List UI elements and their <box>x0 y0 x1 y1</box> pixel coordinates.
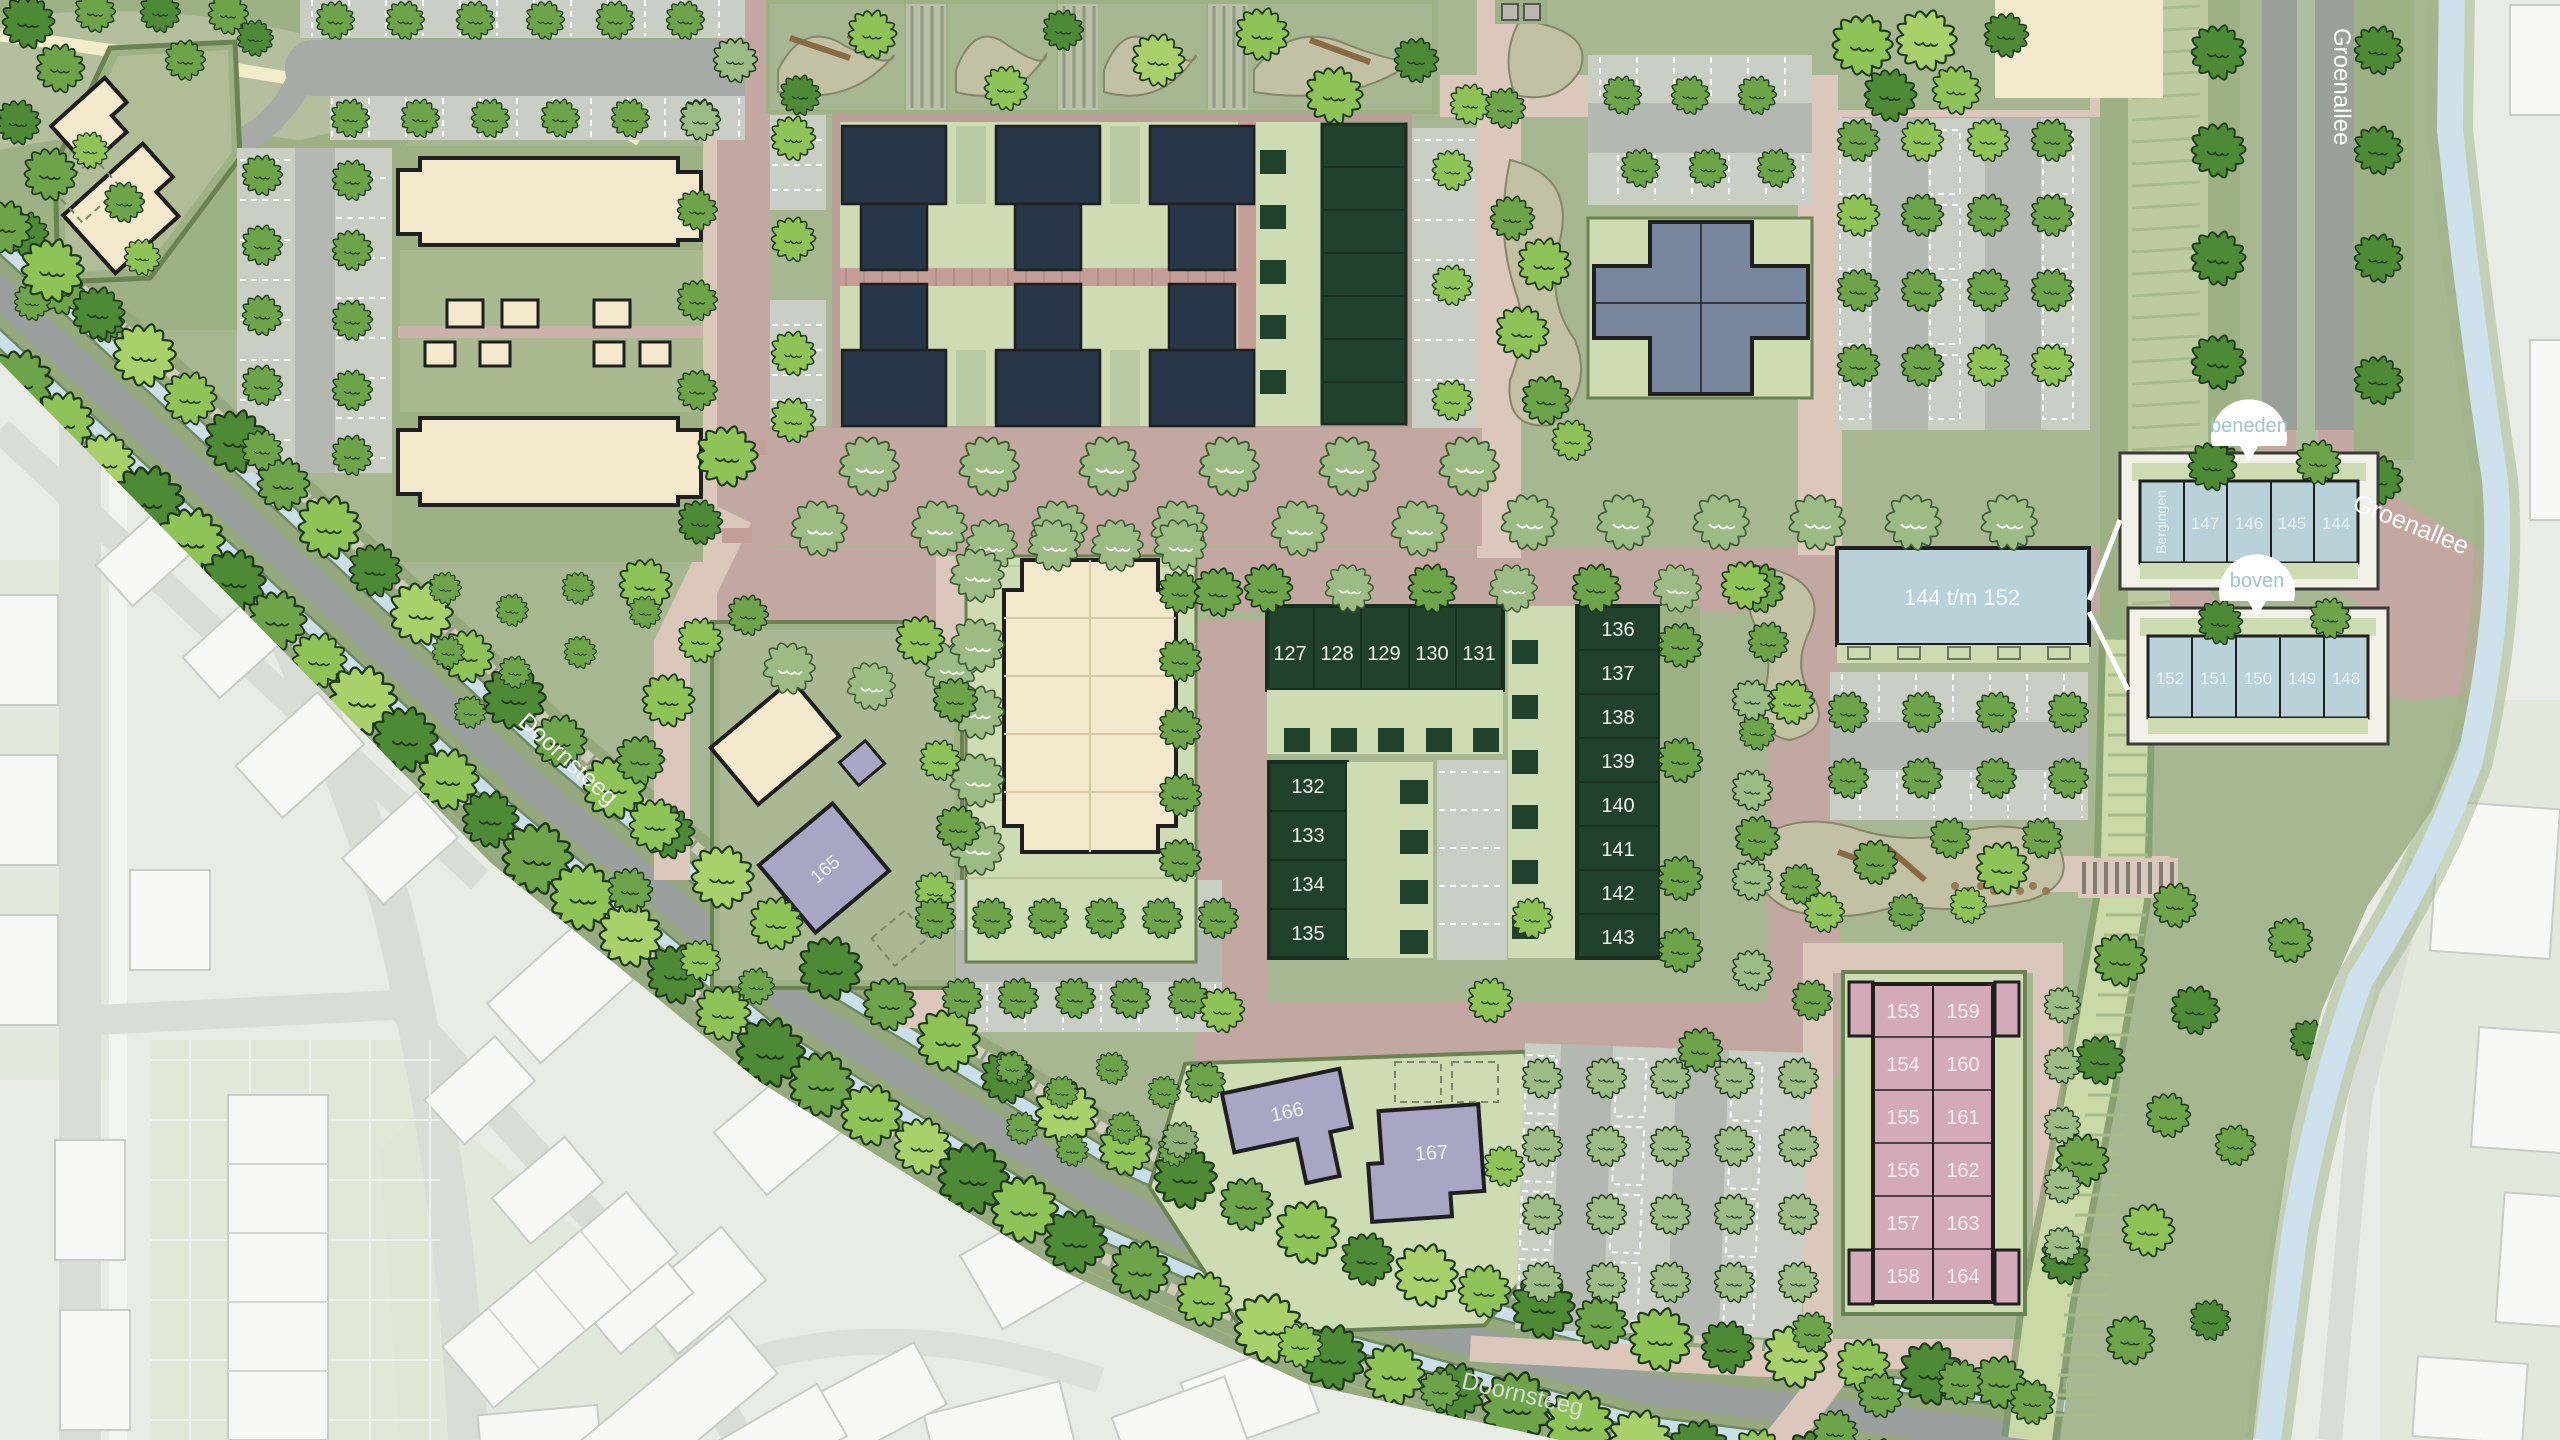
svg-text:142: 142 <box>1601 883 1634 905</box>
svg-text:147: 147 <box>2191 514 2219 533</box>
svg-text:Bergingen: Bergingen <box>2153 490 2169 554</box>
svg-text:139: 139 <box>1601 751 1634 773</box>
svg-text:140: 140 <box>1601 795 1634 817</box>
svg-text:153: 153 <box>1886 1001 1919 1023</box>
svg-text:160: 160 <box>1946 1054 1979 1076</box>
svg-text:146: 146 <box>2235 514 2263 533</box>
svg-text:144: 144 <box>2322 514 2350 533</box>
svg-text:151: 151 <box>2200 669 2228 688</box>
svg-text:158: 158 <box>1886 1266 1919 1288</box>
svg-text:136: 136 <box>1601 619 1634 641</box>
svg-text:144 t/m 152: 144 t/m 152 <box>1904 585 2020 610</box>
svg-text:137: 137 <box>1601 663 1634 685</box>
svg-text:138: 138 <box>1601 707 1634 729</box>
svg-text:133: 133 <box>1291 825 1324 847</box>
svg-text:127: 127 <box>1273 643 1306 665</box>
svg-text:145: 145 <box>2278 514 2306 533</box>
svg-text:143: 143 <box>1601 927 1634 949</box>
svg-text:135: 135 <box>1291 923 1324 945</box>
svg-text:148: 148 <box>2332 669 2360 688</box>
svg-text:128: 128 <box>1320 643 1353 665</box>
svg-text:129: 129 <box>1367 643 1400 665</box>
svg-text:163: 163 <box>1946 1213 1979 1235</box>
svg-text:164: 164 <box>1946 1266 1979 1288</box>
svg-text:131: 131 <box>1462 643 1495 665</box>
svg-text:boven: boven <box>2230 570 2285 592</box>
svg-text:154: 154 <box>1886 1054 1919 1076</box>
svg-text:149: 149 <box>2288 669 2316 688</box>
svg-text:150: 150 <box>2244 669 2272 688</box>
svg-text:155: 155 <box>1886 1107 1919 1129</box>
svg-text:161: 161 <box>1946 1107 1979 1129</box>
svg-text:130: 130 <box>1415 643 1448 665</box>
svg-text:162: 162 <box>1946 1160 1979 1182</box>
svg-text:132: 132 <box>1291 776 1324 798</box>
svg-text:141: 141 <box>1601 839 1634 861</box>
svg-text:134: 134 <box>1291 874 1324 896</box>
svg-text:159: 159 <box>1946 1001 1979 1023</box>
svg-text:152: 152 <box>2156 669 2184 688</box>
svg-text:beneden: beneden <box>2210 415 2288 437</box>
svg-text:167: 167 <box>1414 1141 1449 1165</box>
svg-text:157: 157 <box>1886 1213 1919 1235</box>
svg-text:Groenallee: Groenallee <box>2328 28 2355 145</box>
svg-text:156: 156 <box>1886 1160 1919 1182</box>
